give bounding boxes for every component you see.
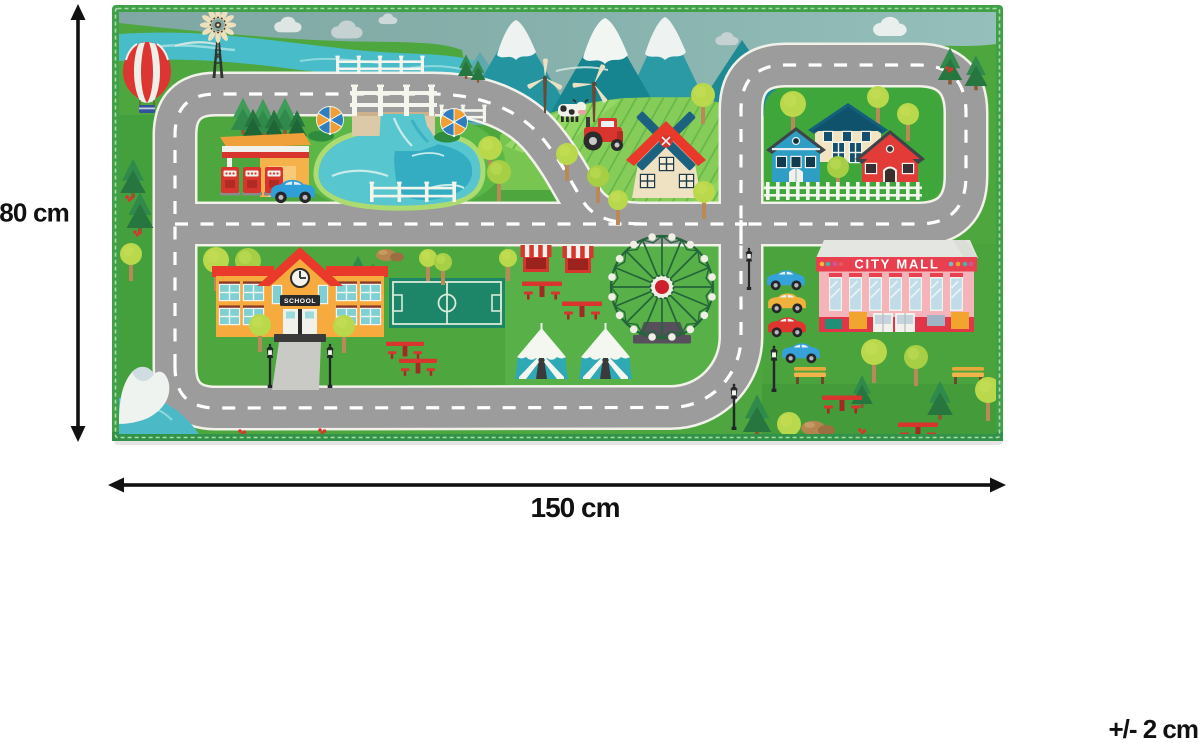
svg-text:80 cm: 80 cm [0,198,69,228]
svg-text:CITY MALL: CITY MALL [854,257,939,272]
svg-text:150 cm: 150 cm [531,492,620,523]
svg-text:SCHOOL: SCHOOL [284,298,316,305]
svg-text:+/- 2 cm: +/- 2 cm [1108,714,1198,743]
